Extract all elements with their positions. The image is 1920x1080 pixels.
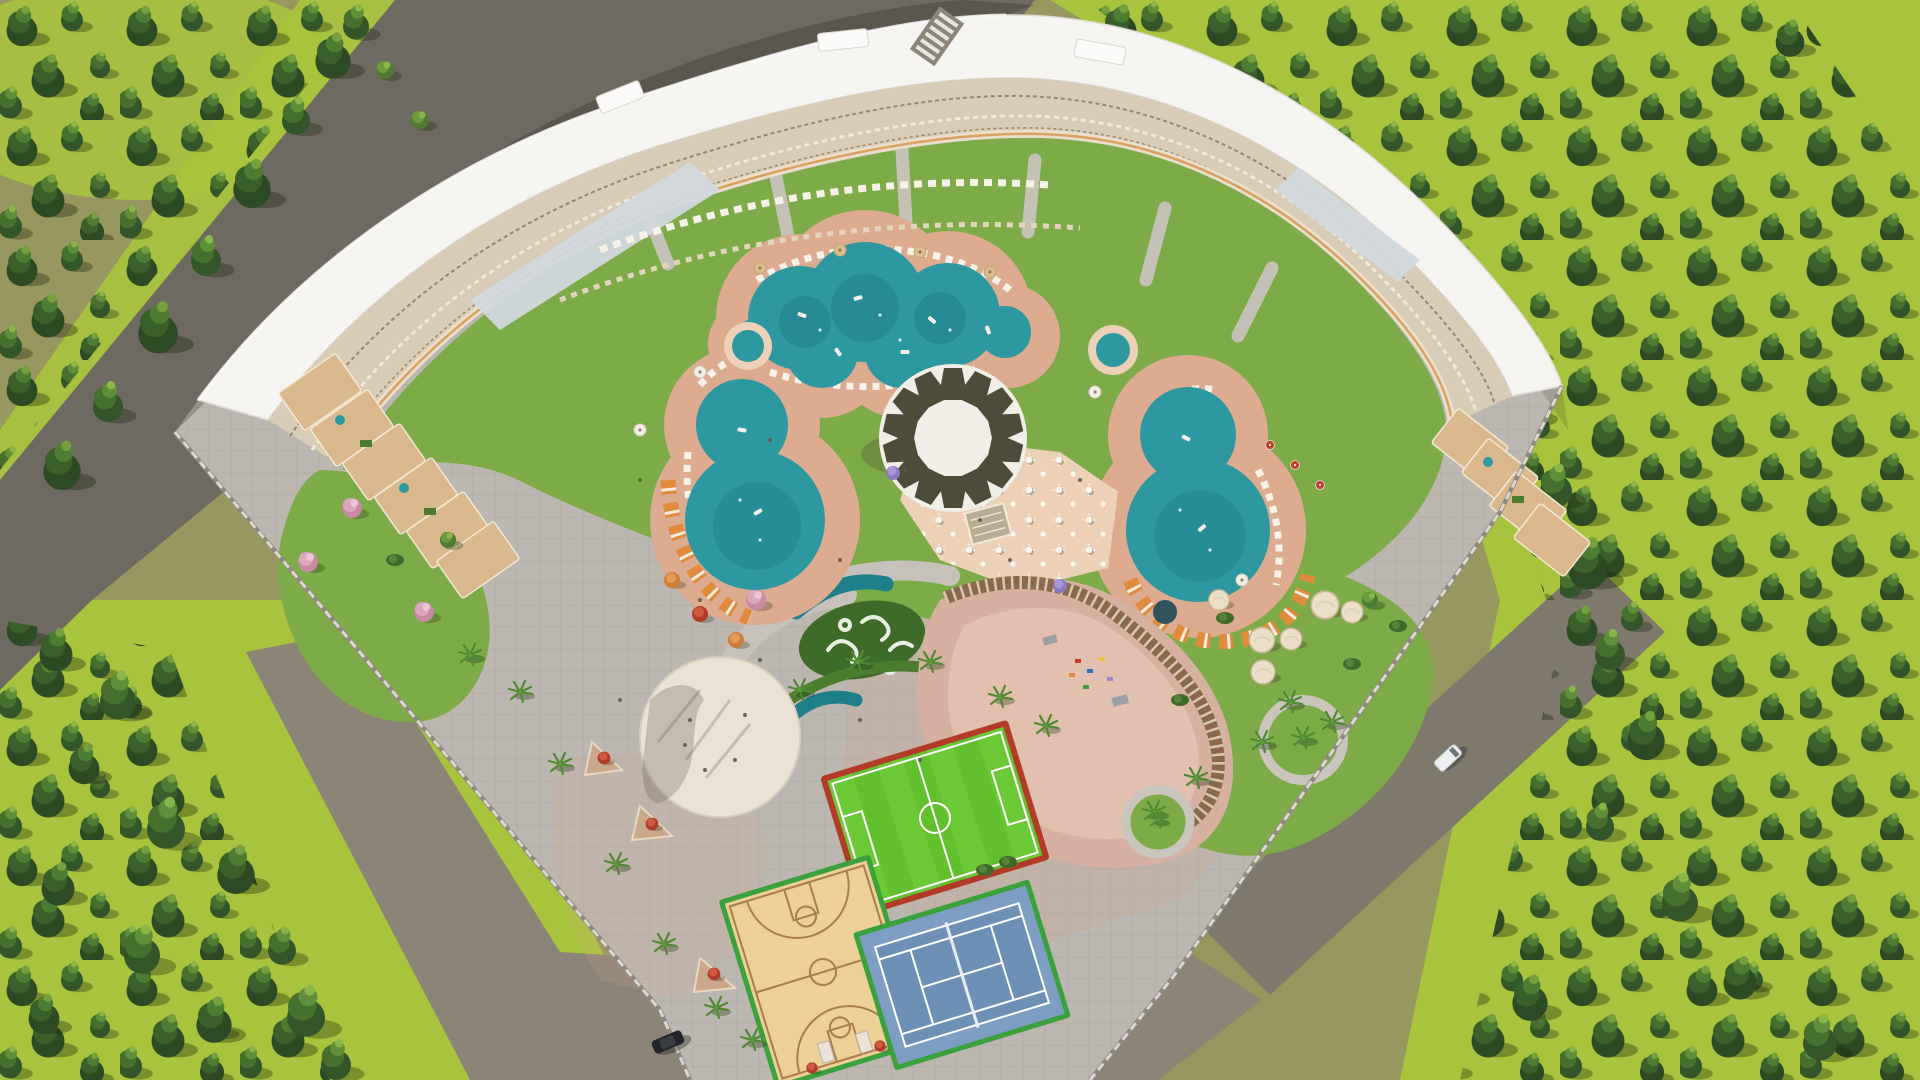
aerial-render: Aerial 3D render of a crescent-shaped re… (0, 0, 1920, 1080)
resort-aerial-scene: Aerial 3D render of a crescent-shaped re… (0, 0, 1920, 1080)
event-plaza-circle (640, 657, 800, 817)
